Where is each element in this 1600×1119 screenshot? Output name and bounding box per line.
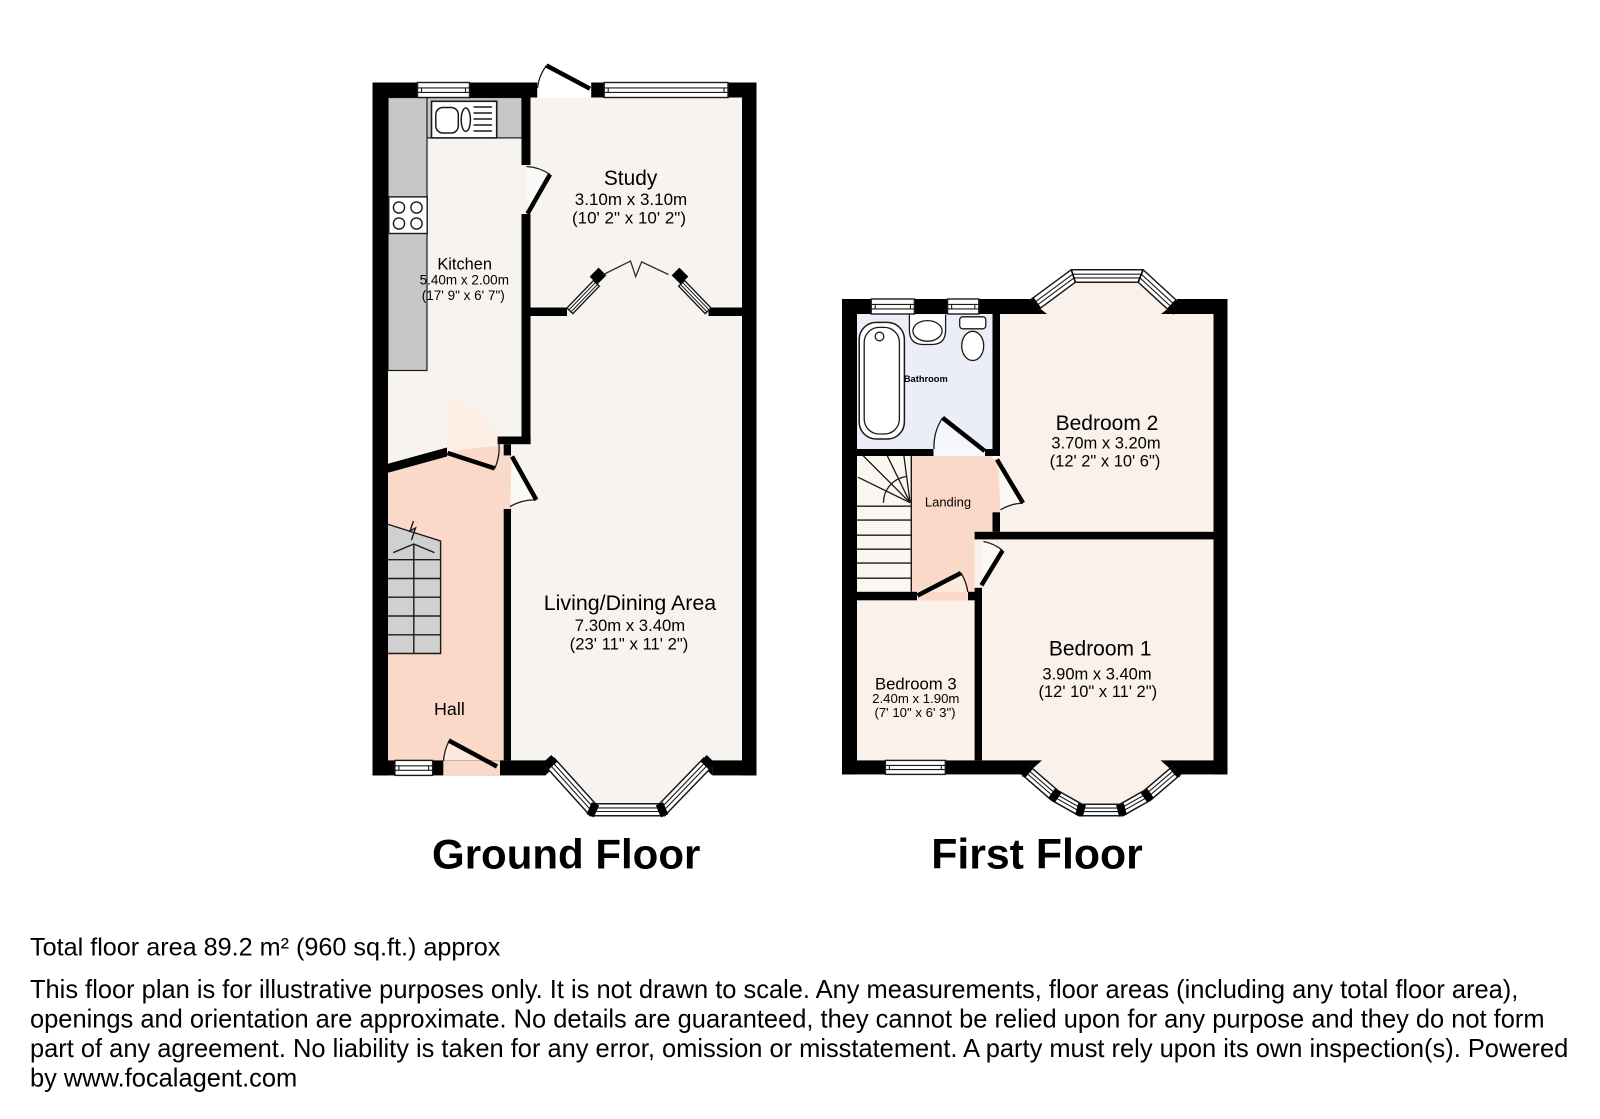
svg-text:(12' 2" x 10' 6"): (12' 2" x 10' 6") — [1050, 453, 1161, 471]
svg-text:(23' 11" x 11' 2"): (23' 11" x 11' 2") — [570, 634, 689, 653]
svg-text:3.70m x 3.20m: 3.70m x 3.20m — [1051, 435, 1160, 453]
svg-text:Bathroom: Bathroom — [904, 374, 948, 384]
svg-text:Kitchen: Kitchen — [437, 256, 492, 274]
svg-text:3.10m x 3.10m: 3.10m x 3.10m — [575, 190, 687, 209]
svg-text:Living/Dining Area: Living/Dining Area — [544, 591, 717, 615]
svg-text:3.90m x 3.40m: 3.90m x 3.40m — [1042, 666, 1151, 684]
svg-text:Bedroom 2: Bedroom 2 — [1056, 412, 1159, 435]
svg-text:(7' 10" x 6' 3"): (7' 10" x 6' 3") — [874, 705, 955, 720]
svg-text:(17' 9" x 6' 7"): (17' 9" x 6' 7") — [422, 288, 505, 303]
svg-text:5.40m x 2.00m: 5.40m x 2.00m — [420, 273, 509, 288]
svg-text:2.40m x 1.90m: 2.40m x 1.90m — [872, 691, 959, 706]
svg-text:Bedroom 1: Bedroom 1 — [1049, 638, 1152, 661]
svg-text:This floor plan is for illustr: This floor plan is for illustrative purp… — [30, 976, 1518, 1004]
svg-text:(10' 2" x 10' 2"): (10' 2" x 10' 2") — [572, 208, 686, 227]
svg-text:7.30m x 3.40m: 7.30m x 3.40m — [575, 616, 685, 635]
svg-text:openings and orientation are a: openings and orientation are approximate… — [30, 1006, 1545, 1034]
svg-text:Study: Study — [604, 167, 658, 190]
svg-text:Hall: Hall — [434, 699, 465, 719]
svg-text:Total floor area 89.2 m² (960: Total floor area 89.2 m² (960 sq.ft.) ap… — [30, 933, 501, 961]
svg-text:by www.focalagent.com: by www.focalagent.com — [30, 1064, 297, 1092]
svg-text:(12' 10" x 11' 2"): (12' 10" x 11' 2") — [1038, 683, 1157, 701]
svg-text:Ground Floor: Ground Floor — [432, 830, 700, 877]
svg-text:Landing: Landing — [925, 495, 971, 510]
svg-text:First Floor: First Floor — [931, 830, 1143, 878]
svg-text:part of any agreement. No liab: part of any agreement. No liability is t… — [30, 1035, 1568, 1063]
